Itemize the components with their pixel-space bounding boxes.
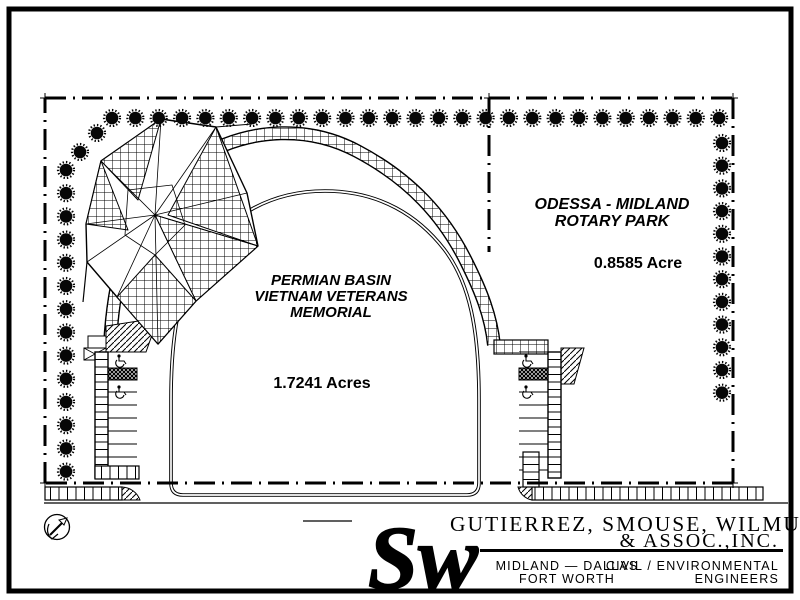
memorial-label-line3: MEMORIAL (290, 304, 372, 321)
site-plan-sheet: PERMIAN BASIN VIETNAM VETERANS MEMORIAL … (0, 0, 800, 600)
park-area-label: 0.8585 Acre (594, 255, 682, 272)
discipline-line2: ENGINEERS (695, 572, 779, 586)
park-label-line2: ROTARY PARK (555, 213, 671, 230)
discipline-line1: CIVIL / ENVIRONMENTAL (606, 559, 779, 573)
plan-drawing: PERMIAN BASIN VIETNAM VETERANS MEMORIAL … (0, 0, 800, 600)
memorial-area-label: 1.7241 Acres (273, 375, 370, 392)
offices-line2: FORT WORTH (519, 572, 615, 586)
park-label-line1: ODESSA - MIDLAND (535, 196, 690, 213)
park-label: ODESSA - MIDLAND ROTARY PARK (535, 196, 690, 230)
firm-name-line2: & ASSOC.,INC. (620, 530, 779, 552)
title-block-rule (480, 549, 783, 552)
memorial-label-line2: VIETNAM VETERANS (254, 288, 407, 305)
memorial-label-line1: PERMIAN BASIN (271, 272, 392, 289)
